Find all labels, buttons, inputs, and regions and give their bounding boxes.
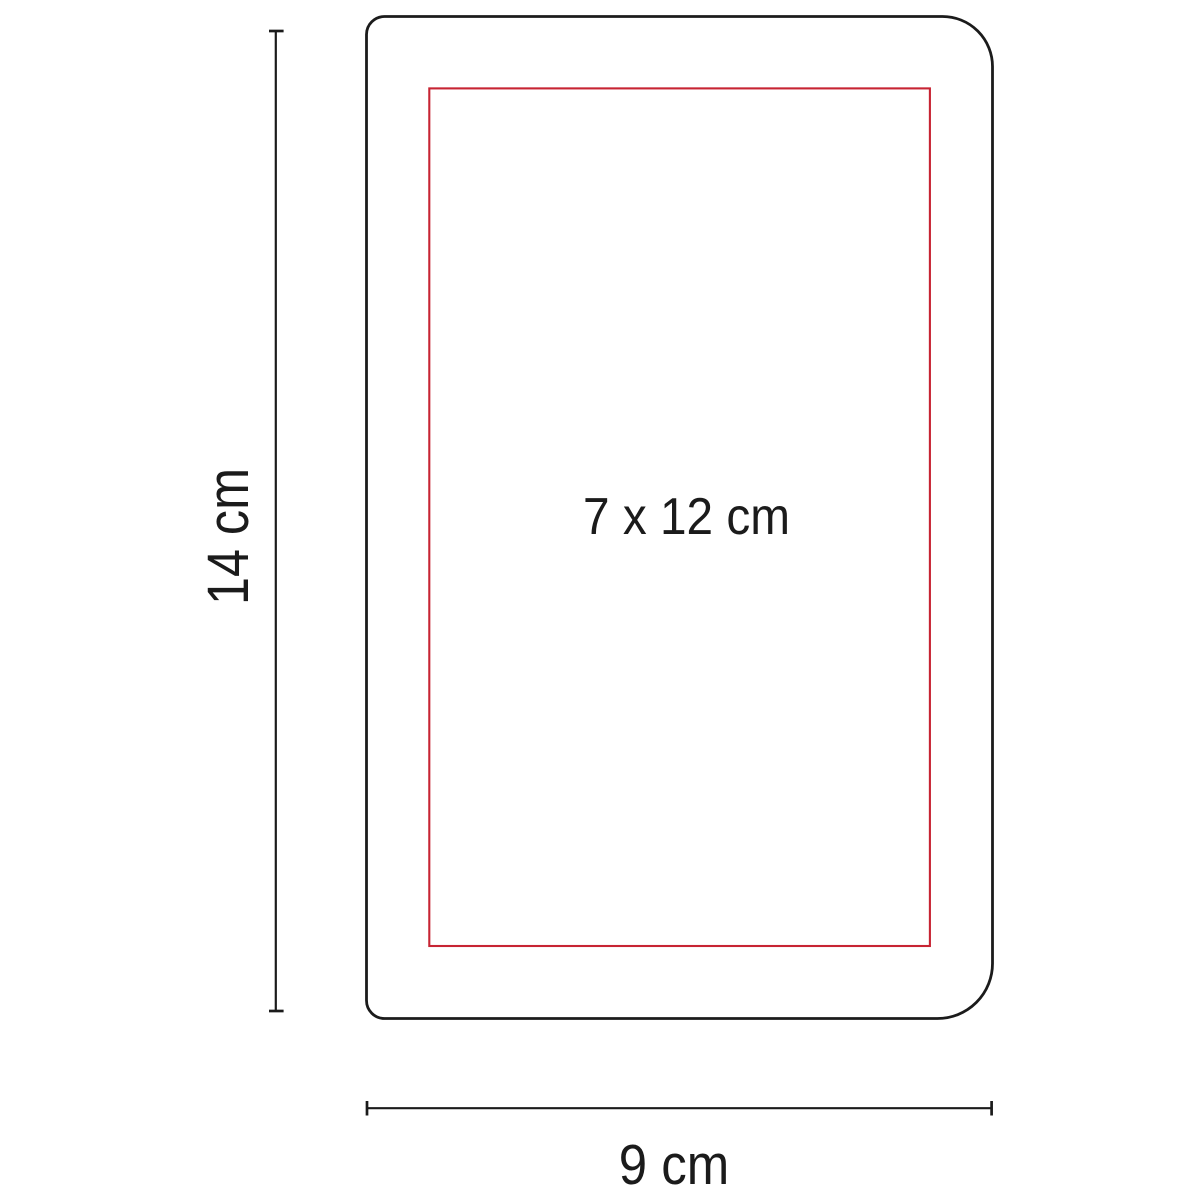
svg-text:7 x 12 cm: 7 x 12 cm xyxy=(583,488,790,546)
svg-text:14 cm: 14 cm xyxy=(196,468,261,605)
svg-text:9 cm: 9 cm xyxy=(619,1133,730,1197)
